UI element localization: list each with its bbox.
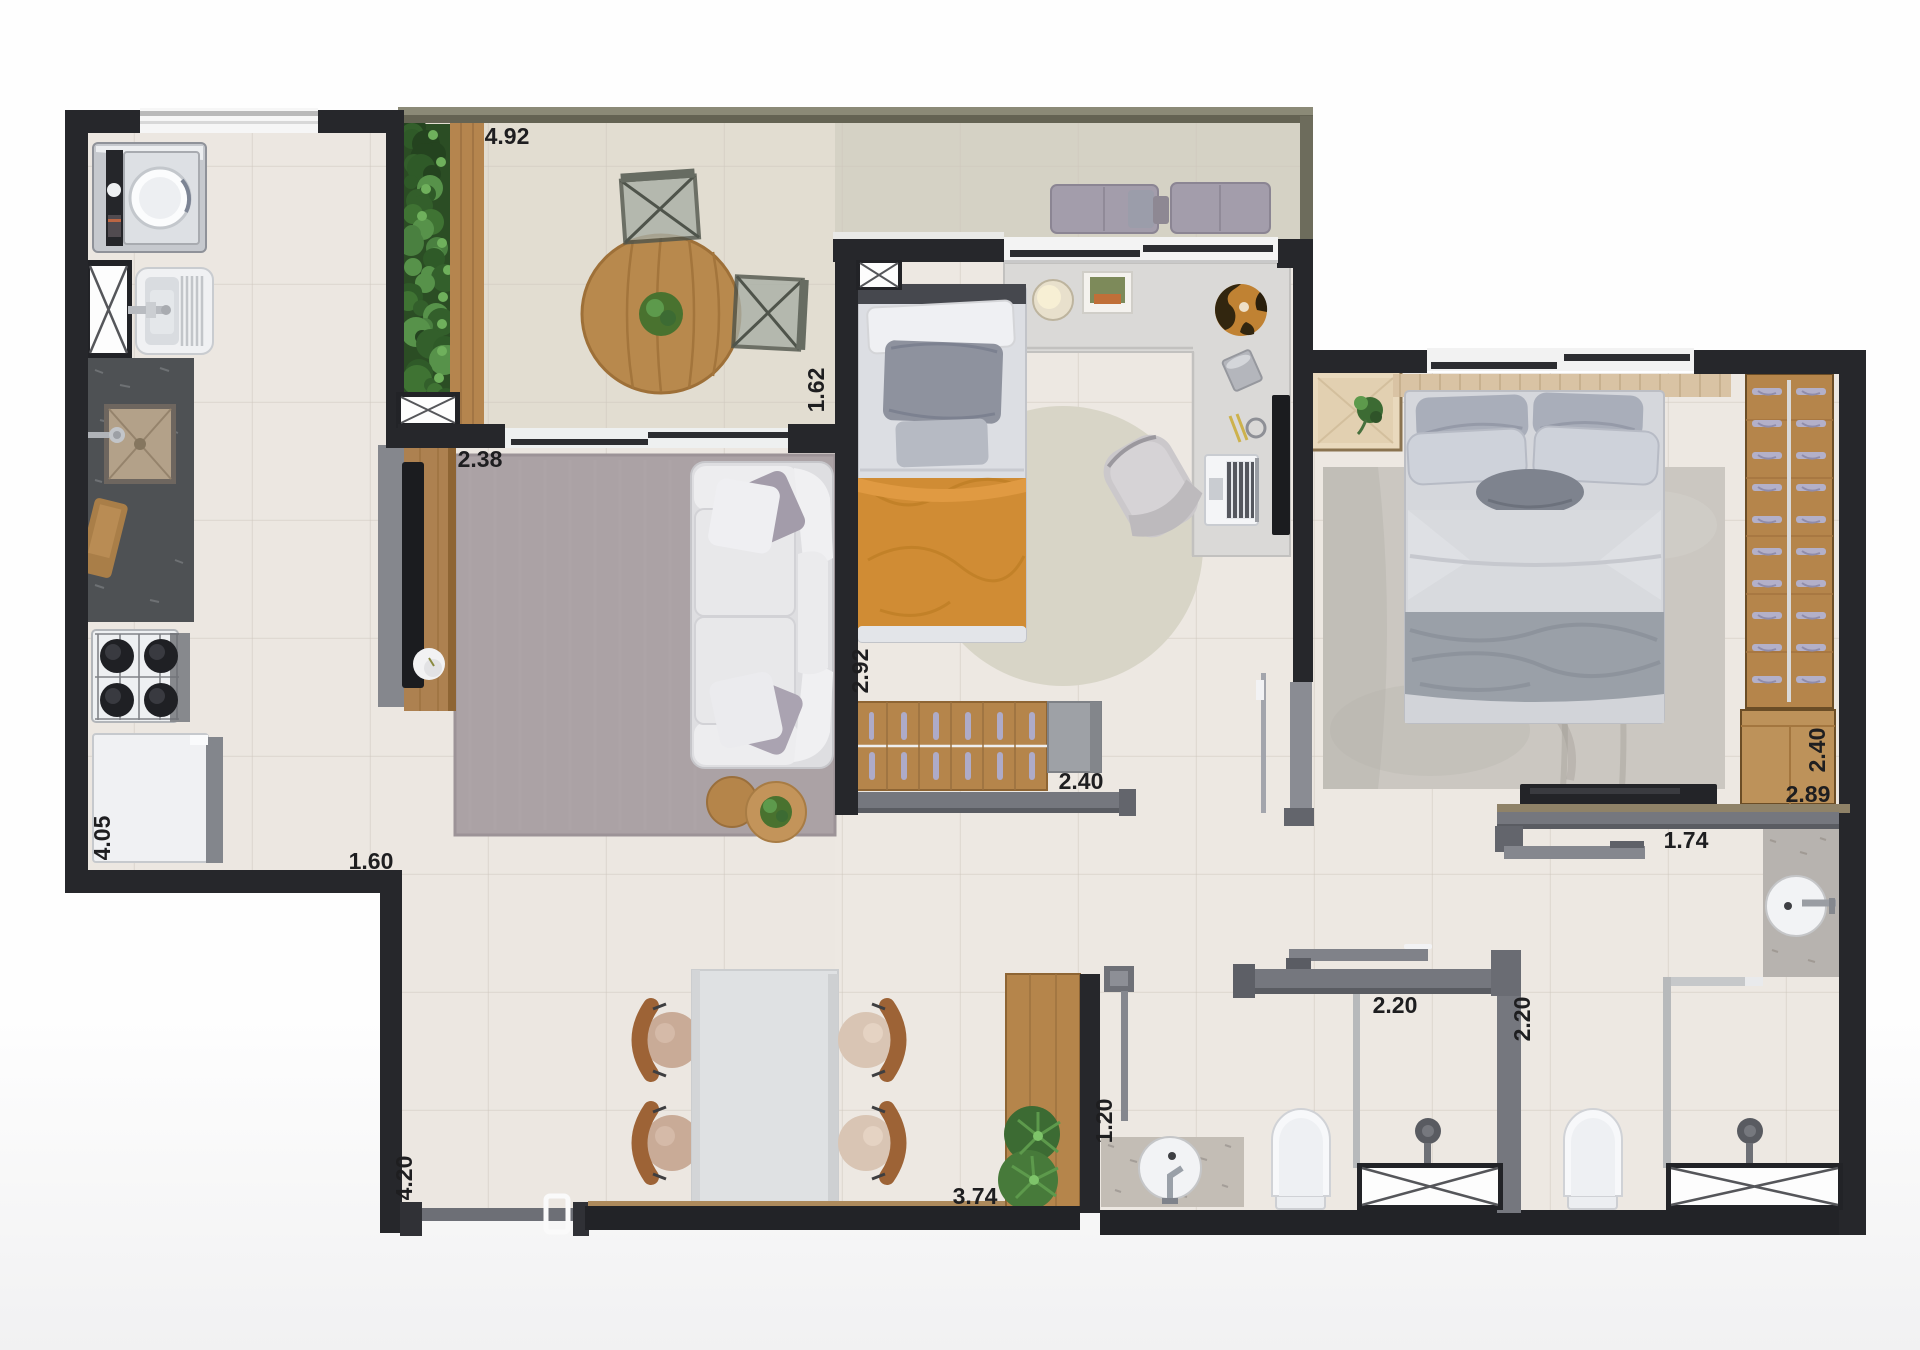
svg-text:2.20: 2.20 xyxy=(1373,992,1418,1018)
svg-text:2.20: 2.20 xyxy=(1509,997,1535,1042)
svg-text:2.89: 2.89 xyxy=(1786,781,1831,807)
svg-text:2.38: 2.38 xyxy=(458,446,503,472)
svg-text:1.60: 1.60 xyxy=(349,848,394,874)
svg-text:3.74: 3.74 xyxy=(953,1183,998,1209)
svg-text:4.05: 4.05 xyxy=(89,815,115,860)
svg-text:1.74: 1.74 xyxy=(1664,827,1709,853)
svg-text:2.40: 2.40 xyxy=(1059,768,1104,794)
svg-text:4.92: 4.92 xyxy=(485,123,530,149)
svg-text:2.92: 2.92 xyxy=(847,649,873,694)
svg-text:1.62: 1.62 xyxy=(803,368,829,413)
svg-text:2.40: 2.40 xyxy=(1804,728,1830,773)
svg-text:4.20: 4.20 xyxy=(391,1156,417,1201)
svg-text:1.20: 1.20 xyxy=(1091,1099,1117,1144)
